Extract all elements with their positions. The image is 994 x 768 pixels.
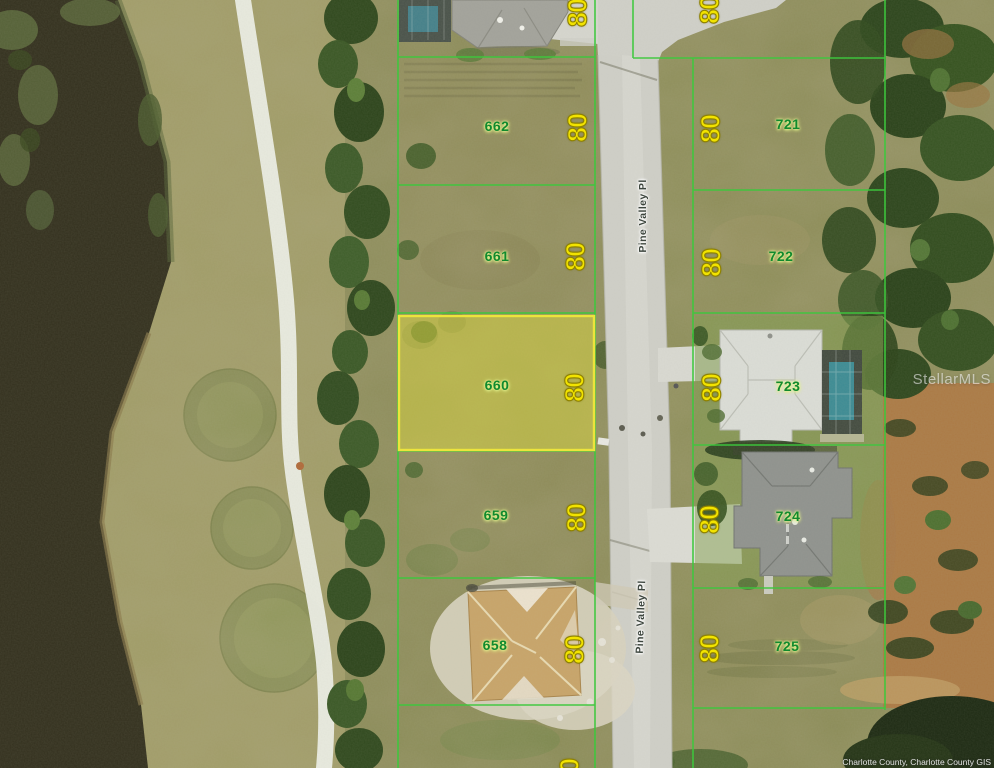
frontage-partial-top-west: 80 (563, 0, 594, 27)
frontage-662: 80 (563, 114, 594, 142)
street-label-pine-valley-pl-upper: Pine Valley Pl (637, 179, 649, 252)
lot-number-725: 725 (775, 638, 800, 654)
lot-number-722: 722 (769, 248, 794, 264)
map-labels: 662 661 660 659 658 721 722 723 724 725 … (0, 0, 994, 768)
frontage-660: 80 (560, 374, 591, 402)
lot-number-659: 659 (484, 507, 509, 523)
frontage-721: 80 (696, 115, 727, 143)
frontage-658: 80 (560, 636, 591, 664)
frontage-724: 80 (695, 506, 726, 534)
frontage-659: 80 (562, 504, 593, 532)
frontage-partial-top-east: 80 (695, 0, 726, 24)
stellar-mls-watermark: StellarMLS (913, 371, 991, 388)
frontage-partial-bottom-west: 80 (555, 759, 586, 768)
gis-attribution: Charlotte County, Charlotte County GIS (842, 757, 991, 767)
lot-number-721: 721 (776, 116, 801, 132)
lot-number-723: 723 (776, 378, 801, 394)
lot-number-662: 662 (485, 118, 510, 134)
lot-number-658: 658 (483, 637, 508, 653)
frontage-661: 80 (561, 243, 592, 271)
aerial-map: 662 661 660 659 658 721 722 723 724 725 … (0, 0, 994, 768)
lot-number-660: 660 (485, 377, 510, 393)
street-label-pine-valley-pl-lower: Pine Valley Pl (634, 580, 649, 654)
frontage-725: 80 (695, 635, 726, 663)
frontage-722: 80 (697, 249, 728, 277)
lot-number-661: 661 (485, 248, 510, 264)
frontage-723: 80 (697, 374, 728, 402)
lot-number-724: 724 (776, 508, 801, 524)
